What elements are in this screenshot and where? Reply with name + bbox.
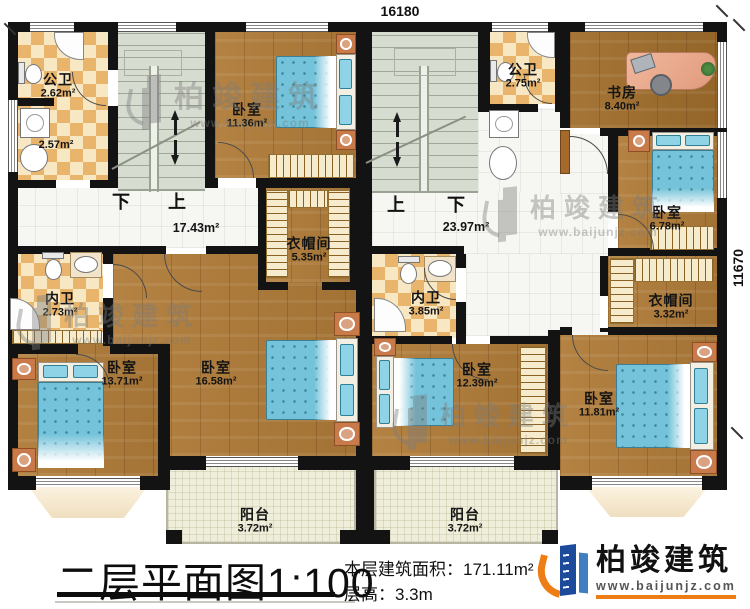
wall-segment (206, 246, 264, 254)
nightstand (336, 130, 356, 150)
wardrobe-rack (610, 258, 634, 324)
mattress (652, 150, 714, 212)
stair-flight-outline (124, 50, 182, 76)
toilet (400, 263, 417, 284)
mattress (616, 364, 690, 448)
pillow (656, 135, 681, 146)
dimension-tick (731, 427, 744, 440)
toilet (42, 252, 64, 259)
stair-direction-arrow (174, 119, 177, 135)
wall-segment (350, 182, 358, 288)
room-label-bedroom-bottom-mid: 卧室 16.58m² (196, 360, 237, 387)
room-label-bedroom-bottom-left: 卧室 13.71m² (102, 360, 143, 387)
nightstand (692, 342, 717, 362)
room-label-hall-left: 17.43m² (173, 222, 220, 236)
pillow (340, 344, 354, 376)
wall-segment (548, 330, 560, 462)
nightstand (336, 34, 356, 54)
office-chair (650, 74, 672, 96)
door-opening (600, 296, 608, 328)
wall-segment (514, 456, 560, 470)
stair-direction-arrow (396, 121, 399, 137)
door-opening (608, 212, 618, 250)
title-underline-light (55, 601, 355, 603)
stair-label-right-down: 下 (447, 191, 465, 217)
wall-segment (8, 476, 36, 490)
logo-tower (560, 544, 576, 596)
room-label-balcony-left: 阳台 3.72m² (238, 507, 273, 534)
room-label-bedroom-bottom-right1: 卧室 12.39m² (457, 362, 498, 389)
room-label-bath-mid-right: 内卫 3.85m² (409, 290, 444, 317)
stair-direction-arrow (393, 157, 401, 167)
floor-height-line: 层高：3.3m (344, 580, 433, 605)
wall-segment (258, 182, 266, 288)
stair-label-left-down: 下 (112, 188, 130, 214)
window (717, 42, 727, 128)
nightstand (12, 448, 36, 472)
door-leaf (560, 130, 570, 174)
door-opening (108, 70, 118, 106)
stair-rail-right (419, 66, 429, 192)
floor-height-value: 3.3m (395, 585, 433, 604)
balcony-post (542, 530, 558, 544)
mattress (38, 382, 104, 468)
dimension-tick (733, 19, 746, 32)
bay-window-bottom-left (28, 486, 148, 518)
bay-window-glass (36, 478, 140, 487)
window (8, 100, 18, 172)
door-opening (456, 268, 466, 302)
wall-segment (322, 282, 358, 290)
wall-segment (258, 282, 288, 290)
room-label-bedroom-right1: 卧室 6.78m² (650, 205, 685, 232)
window (118, 22, 176, 32)
pillow (340, 384, 354, 416)
wall-segment (560, 22, 570, 128)
window (585, 22, 703, 32)
room-label-cloakroom-right: 衣帽间 3.32m² (649, 293, 694, 320)
stair-direction-arrow (171, 155, 179, 165)
wall-segment (608, 327, 717, 335)
wardrobe-rack (634, 258, 714, 282)
stair-rail-left (149, 66, 159, 192)
pillow (694, 408, 708, 444)
door-opening (218, 178, 256, 188)
wall-segment (205, 22, 215, 178)
nightstand (334, 312, 360, 336)
toilet (18, 62, 25, 84)
title-underline (57, 592, 335, 597)
washing-machine (20, 108, 50, 138)
room-label-study: 书房 8.40m² (605, 85, 640, 112)
stair-direction-arrow (396, 142, 399, 158)
wardrobe-rack (12, 330, 102, 344)
sink (489, 146, 517, 180)
room-label-balcony-right: 阳台 3.72m² (448, 507, 483, 534)
dimension-right: 11670 (730, 236, 746, 300)
washing-machine (489, 110, 519, 138)
hallway-right-floor-b (372, 192, 608, 254)
room-label-bath-mid-left: 内卫 2.73m² (43, 291, 78, 318)
wardrobe-rack (520, 346, 546, 454)
hallway-right-floor-c (466, 254, 608, 336)
room-label-bedroom-bottom-right2: 卧室 11.81m² (579, 391, 619, 418)
pillow (339, 95, 352, 125)
balcony-post (340, 530, 356, 544)
bed (652, 132, 714, 212)
room-label-bath-top-left: 公卫 2.62m² (41, 72, 76, 99)
toilet (45, 259, 62, 280)
window (492, 22, 548, 32)
wall-segment (372, 246, 464, 254)
toilet (25, 64, 42, 84)
brand-name: 柏竣建筑 (596, 546, 736, 576)
nightstand (628, 130, 650, 152)
dimension-top: 16180 (381, 3, 420, 19)
stair-flight-outline (394, 48, 456, 76)
mattress (276, 56, 336, 128)
balcony-post (166, 530, 182, 544)
wardrobe-rack (268, 154, 354, 178)
bed (376, 356, 454, 428)
stair-direction-arrow (174, 140, 177, 156)
toilet (398, 256, 420, 263)
brand-logo: 柏竣建筑 www.baijunjz.com (534, 543, 736, 601)
plant (701, 62, 715, 76)
bed (616, 362, 716, 450)
room-label-hall-right: 23.97m² (443, 221, 490, 235)
wall-segment (372, 456, 410, 470)
stair-open-edge (118, 189, 205, 191)
bay-window-bottom-right (586, 487, 708, 517)
wall-segment (8, 344, 78, 354)
wall-segment (298, 456, 356, 470)
building-area-value: 171.11m² (463, 560, 534, 579)
balcony-sliding-door (206, 457, 298, 467)
building-area-line: 本层建筑面积：171.11m² (344, 555, 534, 580)
wall-segment (560, 327, 572, 335)
wall-segment (158, 458, 170, 490)
pillow (685, 135, 710, 146)
room-label-bedroom-top-left: 卧室 11.36m² (227, 102, 267, 129)
door-opening (103, 264, 113, 298)
wall-segment (702, 476, 727, 490)
wardrobe-rack (328, 190, 350, 278)
floor-plan-canvas: 公卫 2.62m² 2.57m² 卧室 11.36m² 衣帽间 5.35m² 下… (0, 0, 750, 609)
floor-height-label: 层高： (344, 585, 395, 604)
bay-window-glass (592, 478, 702, 487)
bed (276, 54, 358, 130)
stair-label-left-up: 上 (168, 188, 186, 214)
balcony-sliding-door (410, 457, 514, 467)
window (246, 22, 328, 32)
room-label-cloakroom-left: 衣帽间 5.35m² (287, 236, 332, 263)
hallway-left-floor (14, 186, 264, 248)
wall-segment (158, 344, 170, 458)
nightstand (374, 338, 396, 356)
wardrobe-rack (266, 190, 288, 278)
pillow (379, 360, 390, 390)
brand-url: www.baijunjz.com (596, 579, 736, 599)
mattress (394, 358, 454, 426)
room-label-bath-top-left-2: 2.57m² (39, 139, 74, 151)
window (30, 22, 74, 32)
wall-left-outer (8, 22, 18, 490)
pillow (379, 394, 390, 424)
pillow (694, 368, 708, 404)
room-label-bath-top-right: 公卫 2.75m² (506, 62, 541, 89)
nightstand (334, 422, 360, 446)
building-area-label: 本层建筑面积： (344, 560, 463, 579)
toilet (490, 60, 497, 82)
wall-segment (560, 476, 592, 490)
pillow (43, 365, 68, 378)
window (717, 132, 727, 198)
sink (74, 256, 98, 273)
plan-title-text: 二层平面图 (57, 560, 267, 606)
door-opening (56, 180, 90, 188)
mattress (266, 340, 336, 420)
wall-segment (490, 336, 548, 344)
wardrobe-rack (288, 190, 328, 208)
dimension-tick (716, 5, 729, 18)
logo-tower-small (579, 552, 588, 593)
pillow (339, 59, 352, 89)
bed (266, 338, 360, 422)
brand-logo-icon (534, 543, 588, 601)
nightstand (690, 450, 717, 474)
plan-title: 二层平面图1:100 (57, 549, 375, 609)
wall-segment (478, 22, 490, 112)
nightstand (12, 358, 36, 380)
brand-text: 柏竣建筑 www.baijunjz.com (596, 546, 736, 599)
stair-label-right-up: 上 (387, 191, 405, 217)
balcony-post (374, 530, 390, 544)
